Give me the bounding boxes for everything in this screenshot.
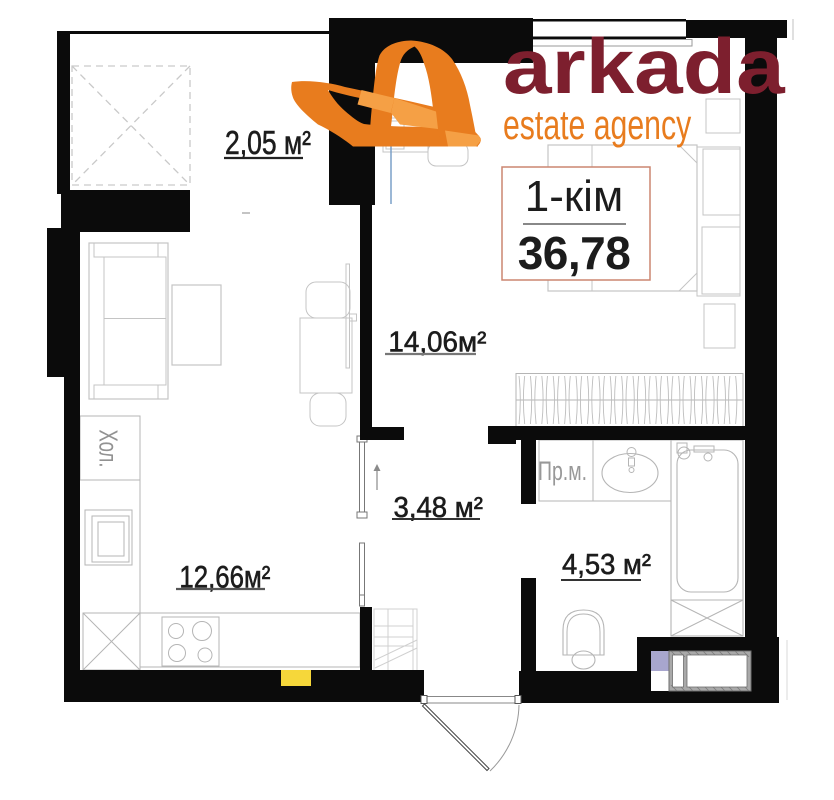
svg-text:36,78: 36,78 [518,227,631,279]
svg-text:Пр.м.: Пр.м. [538,456,587,486]
svg-text:2,05 м²: 2,05 м² [225,124,311,161]
svg-text:Хол.: Хол. [94,430,124,468]
svg-text:4,53 м²: 4,53 м² [562,549,651,581]
svg-text:estate agency: estate agency [503,101,692,148]
svg-text:1-кім: 1-кім [525,172,623,221]
svg-text:arkada: arkada [503,22,786,110]
